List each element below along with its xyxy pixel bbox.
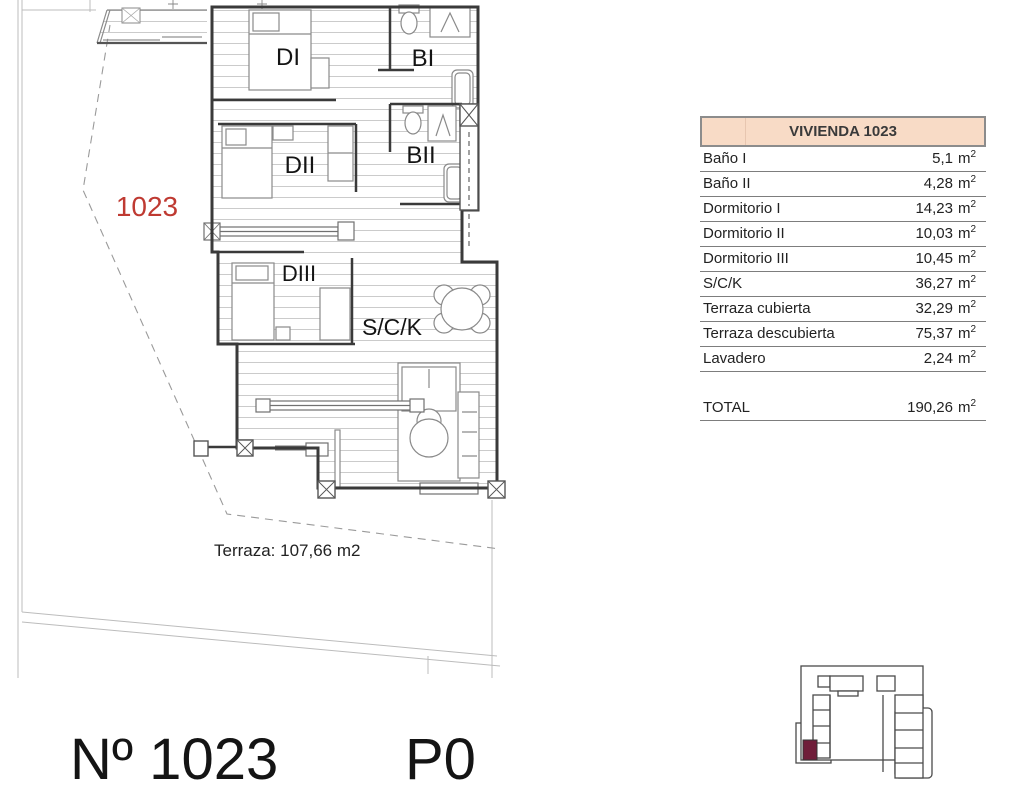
total-label: TOTAL xyxy=(703,396,907,420)
row-label: Dormitorio I xyxy=(703,197,915,221)
row-unit: m2 xyxy=(958,347,981,371)
room-label-bii: BII xyxy=(406,142,435,169)
row-unit: m2 xyxy=(958,172,981,196)
row-label: Terraza cubierta xyxy=(703,297,915,321)
room-label-sck: S/C/K xyxy=(362,314,423,340)
table-spacer xyxy=(700,372,986,396)
row-unit: m2 xyxy=(958,297,981,321)
table-row: Dormitorio I 14,23 m2 xyxy=(700,197,986,222)
unit-number-label: Nº 1023 xyxy=(70,731,278,789)
row-label: S/C/K xyxy=(703,272,915,296)
row-unit: m2 xyxy=(958,222,981,246)
row-value: 36,27 xyxy=(915,272,953,296)
row-value: 10,03 xyxy=(915,222,953,246)
row-label: Terraza descubierta xyxy=(703,322,915,346)
row-unit: m2 xyxy=(958,197,981,221)
room-label-diii: DIII xyxy=(282,261,316,286)
table-title-divider xyxy=(745,118,746,145)
table-row: Terraza descubierta 75,37 m2 xyxy=(700,322,986,347)
area-table: VIVIENDA 1023 Baño I 5,1 m2 Baño II 4,28… xyxy=(700,116,986,421)
room-label-di: DI xyxy=(276,44,300,71)
room-label-bi: BI xyxy=(412,45,435,72)
table-row: Dormitorio II 10,03 m2 xyxy=(700,222,986,247)
table-title: VIVIENDA 1023 xyxy=(700,116,986,147)
table-title-text: VIVIENDA 1023 xyxy=(789,123,897,140)
row-label: Dormitorio III xyxy=(703,247,915,271)
table-row: S/C/K 36,27 m2 xyxy=(700,272,986,297)
table-row: Baño II 4,28 m2 xyxy=(700,172,986,197)
row-value: 4,28 xyxy=(924,172,953,196)
table-row: Dormitorio III 10,45 m2 xyxy=(700,247,986,272)
room-label-dii: DII xyxy=(285,152,316,179)
row-value: 2,24 xyxy=(924,347,953,371)
row-unit: m2 xyxy=(958,247,981,271)
terrace-area-note: Terraza: 107,66 m2 xyxy=(214,541,360,560)
row-unit: m2 xyxy=(958,322,981,346)
unit-number-red: 1023 xyxy=(116,191,178,222)
total-value: 190,26 xyxy=(907,396,953,420)
floor-label: P0 xyxy=(405,731,476,789)
row-value: 10,45 xyxy=(915,247,953,271)
row-label: Lavadero xyxy=(703,347,924,371)
row-label: Baño I xyxy=(703,147,932,171)
row-value: 5,1 xyxy=(932,147,953,171)
row-value: 14,23 xyxy=(915,197,953,221)
highlighted-unit xyxy=(803,740,817,760)
row-unit: m2 xyxy=(958,147,981,171)
row-unit: m2 xyxy=(958,272,981,296)
total-unit: m2 xyxy=(958,396,981,420)
building-keyplan xyxy=(788,650,948,790)
row-value: 32,29 xyxy=(915,297,953,321)
row-label: Baño II xyxy=(703,172,924,196)
table-row: Terraza cubierta 32,29 m2 xyxy=(700,297,986,322)
table-total-row: TOTAL 190,26 m2 xyxy=(700,396,986,421)
table-row: Baño I 5,1 m2 xyxy=(700,147,986,172)
table-row: Lavadero 2,24 m2 xyxy=(700,347,986,372)
row-value: 75,37 xyxy=(915,322,953,346)
row-label: Dormitorio II xyxy=(703,222,915,246)
floor-plan-drawing: DI BI DII BII DIII S/C/K 1023 Terraza: 1… xyxy=(0,0,530,680)
